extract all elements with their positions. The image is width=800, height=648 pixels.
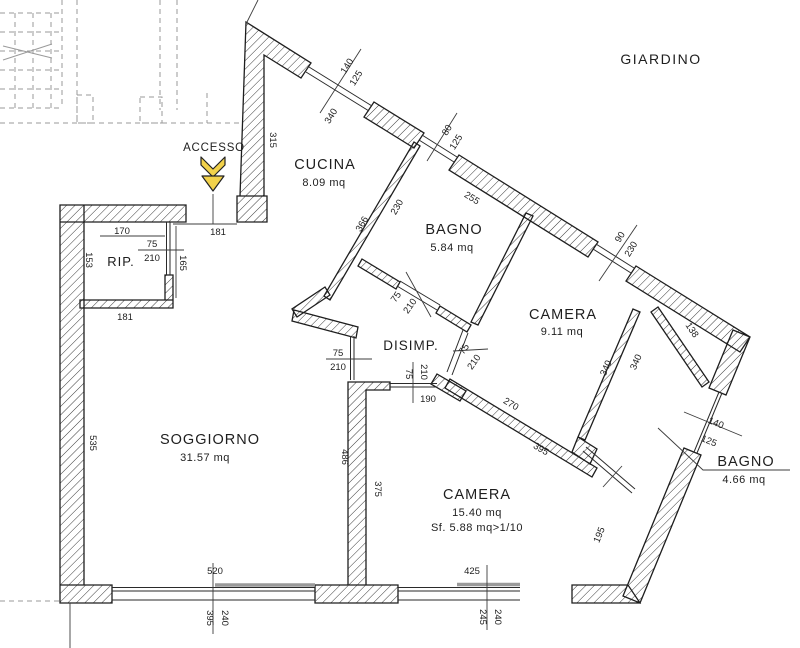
dim-bagno1-door-width: 75	[389, 290, 404, 305]
dim-rip-right: 165	[177, 255, 188, 271]
room-label-soggiorno: SOGGIORNO	[160, 432, 260, 448]
dim-sogg-window: 520	[207, 566, 223, 577]
dim-ne-wall-segment: 255	[462, 190, 481, 208]
dimension-lines	[70, 0, 790, 648]
dim-sogg-win-b: 240	[219, 610, 230, 626]
dim-rip-bottom: 181	[117, 312, 133, 323]
access-label: ACCESSO	[183, 142, 245, 154]
room-label-bagno1: BAGNO	[425, 222, 482, 238]
dim-bagno2-wall-right: 340	[628, 353, 644, 372]
dim-camera1-wall-a: 270	[501, 396, 520, 414]
dim-rip-width: 170	[114, 226, 130, 237]
dim-west-wall: 535	[87, 435, 98, 451]
dim-camera2-door-offset: 190	[420, 394, 436, 405]
dim-west-upper-wall: 315	[267, 132, 278, 148]
dim-rip-door-height: 210	[144, 253, 160, 264]
dim-bagno2-window-width: 140	[706, 415, 725, 431]
dim-camera1-door-width: 75	[457, 342, 472, 357]
dim-bagno2-window-height: 125	[699, 433, 718, 449]
room-label-camera2: CAMERA	[443, 487, 511, 503]
dim-cucina-wall-b: 230	[389, 198, 406, 217]
dim-cam-win-b: 240	[492, 609, 503, 625]
dim-rip-left: 153	[83, 252, 94, 268]
dim-sogg-win-a: 395	[204, 610, 215, 626]
dim-camera2-door-width: 75	[403, 369, 414, 380]
staircase-direction-mark	[3, 44, 52, 60]
room-label-rip: RIP.	[107, 254, 135, 269]
dim-camera1-door-height: 210	[465, 353, 483, 372]
dim-divider-right: 375	[372, 481, 383, 497]
dim-camera2-door-height: 210	[418, 364, 429, 380]
room-area-camera2: 15.40 mq	[452, 507, 502, 519]
access-arrow-icon	[201, 157, 225, 191]
dim-rip-door-width: 75	[147, 239, 158, 250]
dim-bagno1-door-height: 210	[401, 297, 419, 316]
dim-entry-width: 181	[210, 227, 226, 238]
garden-label: GIARDINO	[620, 51, 701, 67]
dim-camera2-window: 425	[464, 566, 480, 577]
room-area-bagno2: 4.66 mq	[722, 474, 765, 486]
dim-small-window-width: 80	[440, 123, 455, 138]
room-label-cucina: CUCINA	[294, 157, 356, 173]
room-label-camera1: CAMERA	[529, 307, 597, 323]
room-area-camera1: 9.11 mq	[541, 326, 583, 338]
dim-sogg-door-width: 75	[333, 348, 344, 359]
room-label-bagno2: BAGNO	[717, 454, 774, 470]
dim-divider-left: 486	[339, 449, 350, 465]
room-label-disimpegno: DISIMP.	[383, 338, 439, 353]
dim-sogg-door-height: 210	[330, 362, 346, 373]
dim-cam-win-a: 245	[477, 609, 488, 625]
floor-plan-canvas: GIARDINO ACCESSO CUCINA 8.09 mq BAGNO 5.…	[0, 0, 800, 648]
room-area-bagno1: 5.84 mq	[430, 242, 473, 254]
dim-cucina-window-sill: 340	[323, 107, 341, 126]
room-area-soggiorno: 31.57 mq	[180, 452, 230, 464]
room-area-cucina: 8.09 mq	[302, 177, 345, 189]
room-note-camera2: Sf. 5.88 mq>1/10	[431, 522, 523, 534]
floor-plan-drawing: GIARDINO ACCESSO CUCINA 8.09 mq BAGNO 5.…	[0, 0, 800, 648]
dim-se-wall-segment: 195	[592, 526, 608, 545]
